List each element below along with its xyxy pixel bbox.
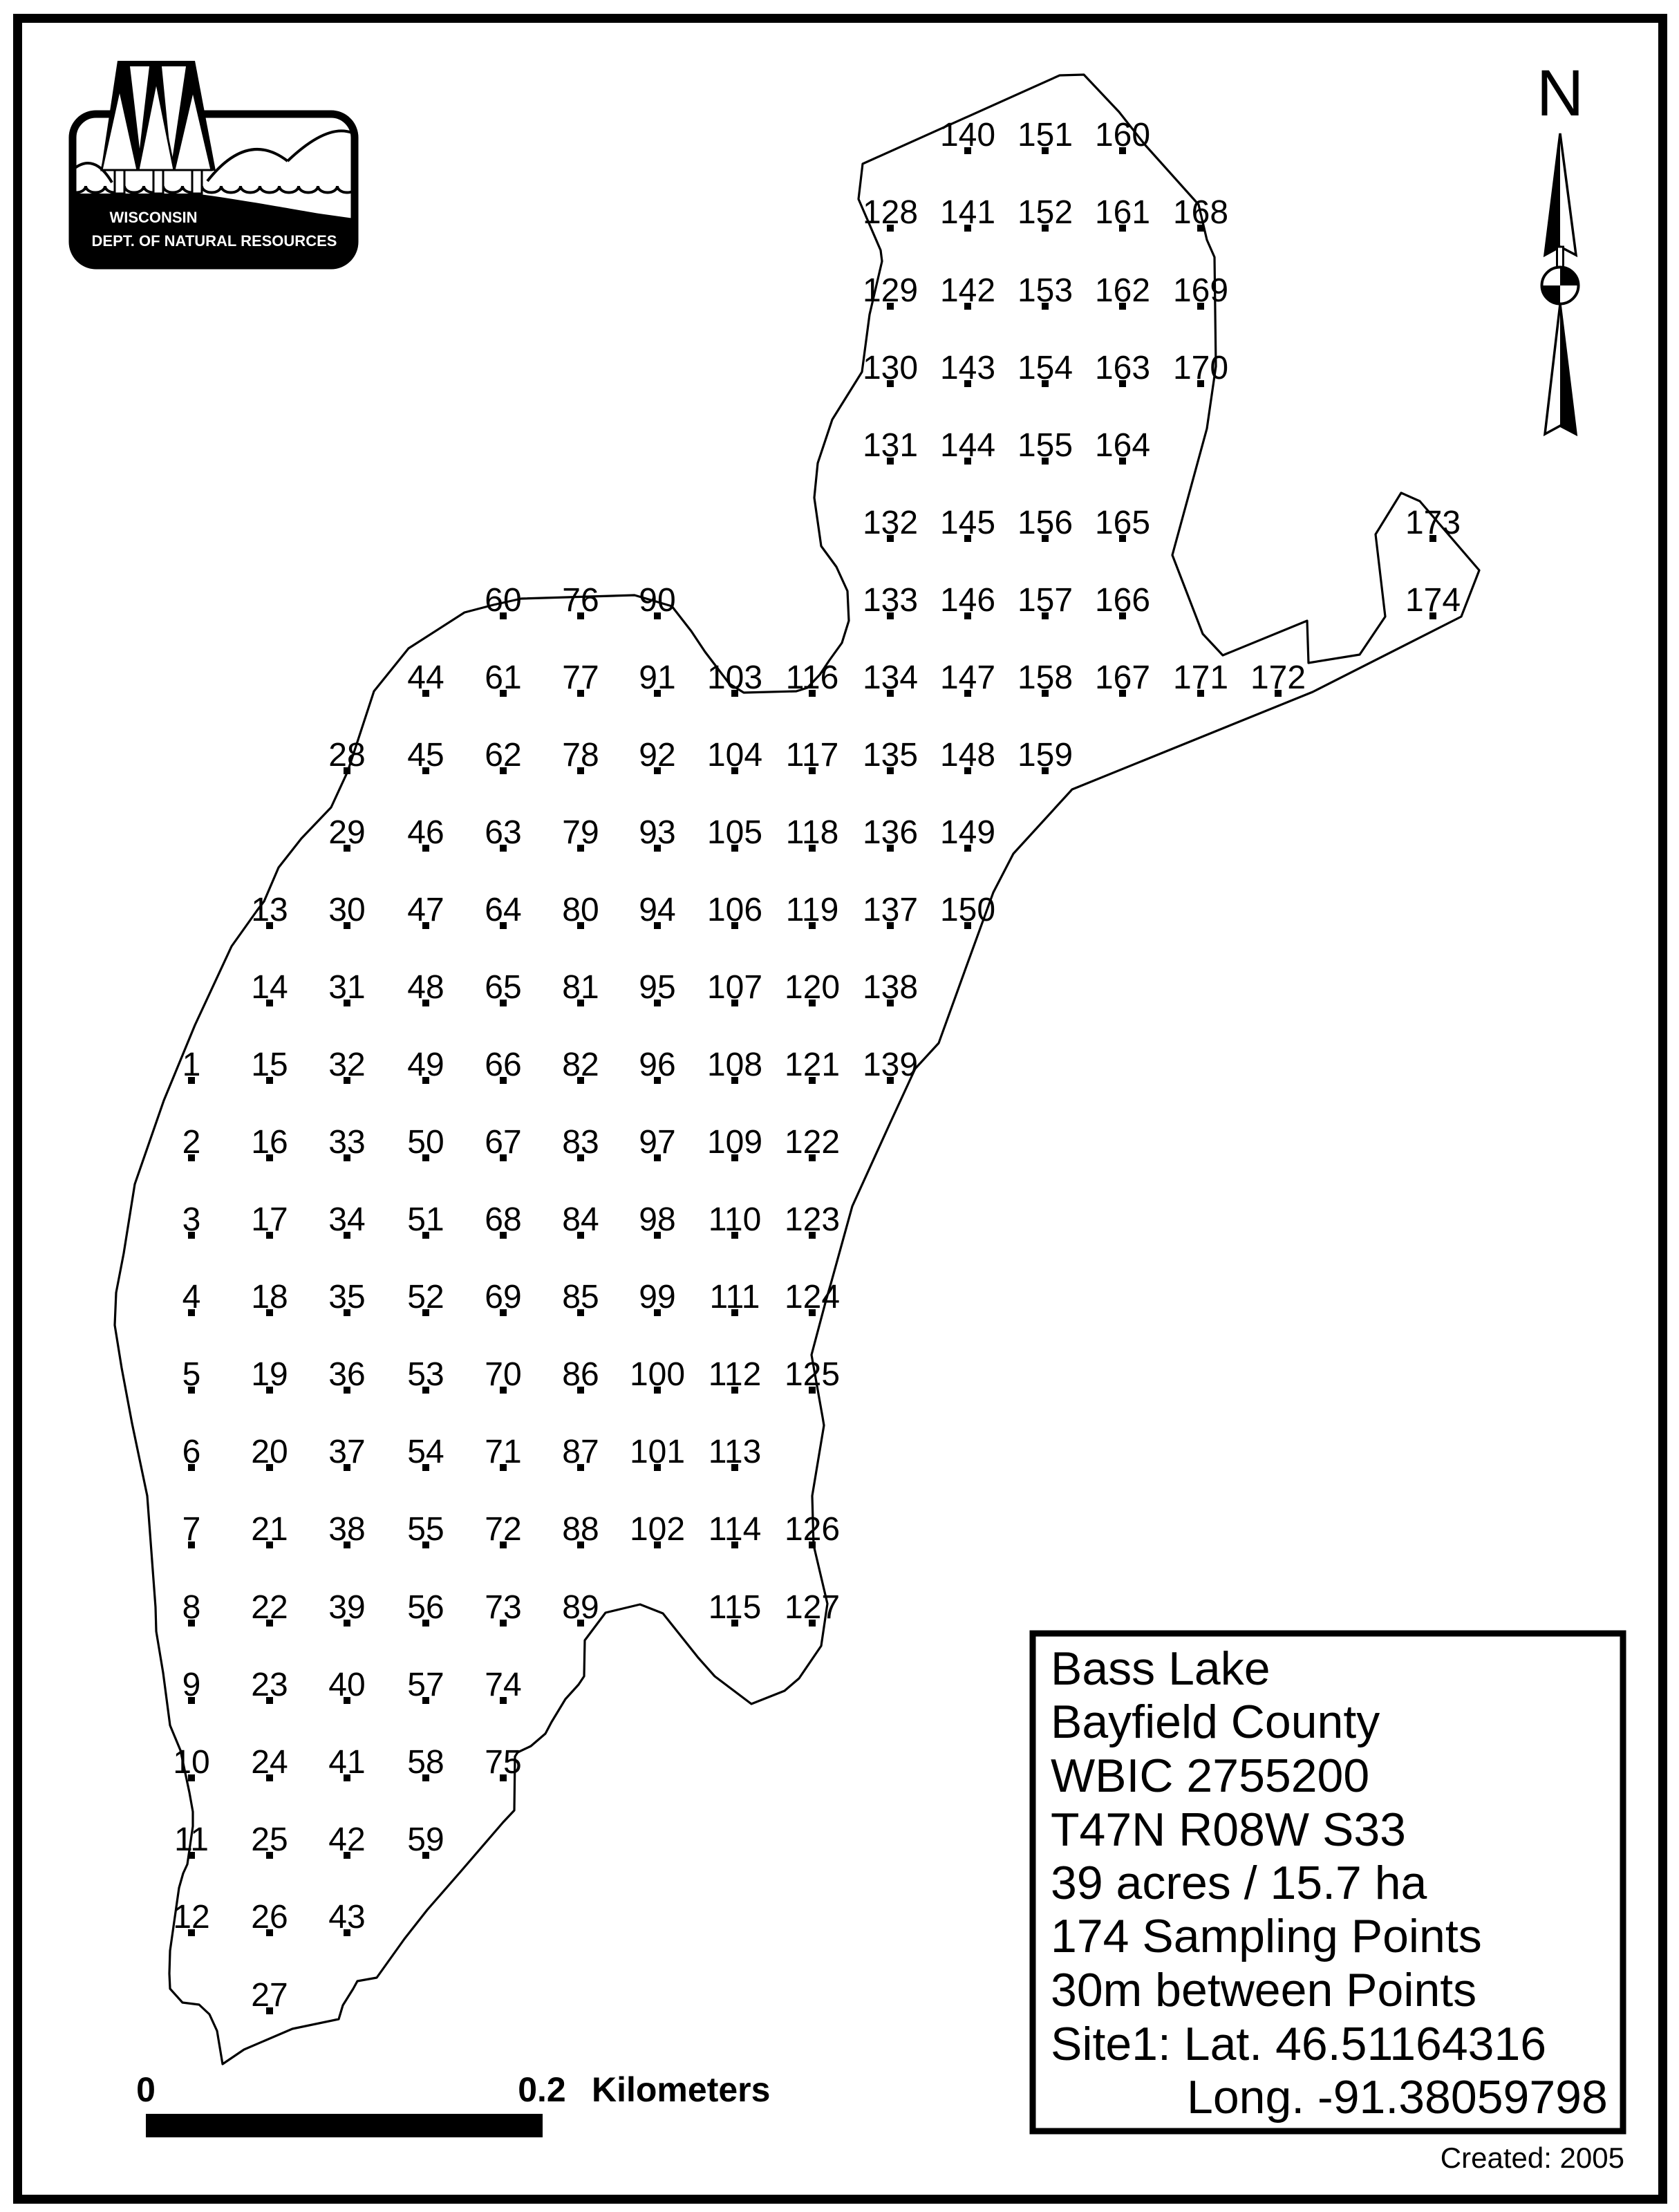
svg-text:26: 26: [251, 1899, 288, 1935]
svg-text:55: 55: [407, 1511, 444, 1548]
svg-text:WBIC 2755200: WBIC 2755200: [1051, 1750, 1369, 1802]
svg-text:30m between Points: 30m between Points: [1051, 1964, 1476, 2016]
svg-text:174: 174: [1405, 582, 1461, 619]
svg-text:Kilometers: Kilometers: [592, 2070, 770, 2109]
svg-text:82: 82: [562, 1047, 599, 1083]
svg-text:96: 96: [639, 1047, 675, 1083]
svg-text:18: 18: [251, 1279, 288, 1315]
svg-text:37: 37: [328, 1434, 365, 1470]
svg-text:166: 166: [1095, 582, 1150, 619]
svg-text:134: 134: [863, 659, 918, 696]
svg-text:61: 61: [485, 659, 521, 696]
svg-text:27: 27: [251, 1977, 288, 2014]
svg-text:16: 16: [251, 1124, 288, 1161]
svg-text:138: 138: [863, 969, 918, 1006]
svg-text:108: 108: [707, 1047, 762, 1083]
svg-text:133: 133: [863, 582, 918, 619]
svg-text:119: 119: [786, 892, 839, 928]
svg-text:79: 79: [562, 814, 599, 851]
svg-text:145: 145: [940, 505, 995, 541]
svg-text:113: 113: [709, 1434, 762, 1470]
svg-text:0: 0: [136, 2070, 156, 2109]
svg-text:5: 5: [182, 1356, 201, 1393]
svg-text:147: 147: [940, 659, 995, 696]
svg-text:28: 28: [328, 737, 365, 774]
svg-text:78: 78: [562, 737, 599, 774]
svg-text:42: 42: [328, 1821, 365, 1858]
svg-text:148: 148: [940, 737, 995, 774]
svg-text:19: 19: [251, 1356, 288, 1393]
svg-text:7: 7: [182, 1511, 201, 1548]
svg-text:111: 111: [710, 1279, 760, 1315]
svg-text:51: 51: [407, 1201, 444, 1238]
svg-text:70: 70: [485, 1356, 521, 1393]
svg-text:45: 45: [407, 737, 444, 774]
svg-text:115: 115: [709, 1589, 762, 1626]
svg-text:132: 132: [863, 505, 918, 541]
svg-text:43: 43: [328, 1899, 365, 1935]
svg-text:65: 65: [485, 969, 521, 1006]
svg-text:152: 152: [1017, 194, 1073, 231]
svg-text:163: 163: [1095, 350, 1150, 386]
svg-text:92: 92: [639, 737, 675, 774]
svg-text:104: 104: [707, 737, 762, 774]
svg-text:174 Sampling Points: 174 Sampling Points: [1051, 1910, 1482, 1962]
svg-text:Created: 2005: Created: 2005: [1441, 2141, 1624, 2174]
svg-text:54: 54: [407, 1434, 444, 1470]
svg-text:T47N R08W S33: T47N R08W S33: [1051, 1803, 1406, 1856]
svg-text:2: 2: [182, 1124, 201, 1161]
svg-text:59: 59: [407, 1821, 444, 1858]
svg-text:156: 156: [1017, 505, 1073, 541]
svg-text:21: 21: [251, 1511, 288, 1548]
svg-text:DEPT. OF NATURAL RESOURCES: DEPT. OF NATURAL RESOURCES: [92, 232, 337, 250]
svg-text:172: 172: [1250, 659, 1306, 696]
svg-text:31: 31: [328, 969, 365, 1006]
svg-text:25: 25: [251, 1821, 288, 1858]
svg-text:75: 75: [485, 1744, 521, 1781]
svg-text:127: 127: [785, 1589, 840, 1626]
svg-text:167: 167: [1095, 659, 1150, 696]
svg-text:58: 58: [407, 1744, 444, 1781]
svg-text:76: 76: [562, 582, 599, 619]
svg-text:114: 114: [709, 1511, 762, 1548]
svg-text:95: 95: [639, 969, 675, 1006]
svg-text:40: 40: [328, 1667, 365, 1703]
svg-text:165: 165: [1095, 505, 1150, 541]
svg-text:93: 93: [639, 814, 675, 851]
svg-text:117: 117: [786, 737, 839, 774]
svg-text:154: 154: [1017, 350, 1073, 386]
svg-text:52: 52: [407, 1279, 444, 1315]
svg-text:49: 49: [407, 1047, 444, 1083]
svg-text:110: 110: [709, 1201, 762, 1238]
svg-text:23: 23: [251, 1667, 288, 1703]
svg-text:86: 86: [562, 1356, 599, 1393]
svg-text:149: 149: [940, 814, 995, 851]
svg-text:22: 22: [251, 1589, 288, 1626]
svg-text:89: 89: [562, 1589, 599, 1626]
svg-text:33: 33: [328, 1124, 365, 1161]
svg-text:102: 102: [630, 1511, 685, 1548]
svg-text:157: 157: [1017, 582, 1073, 619]
svg-text:160: 160: [1095, 117, 1150, 153]
svg-text:88: 88: [562, 1511, 599, 1548]
svg-text:120: 120: [785, 969, 840, 1006]
svg-text:130: 130: [863, 350, 918, 386]
svg-text:94: 94: [639, 892, 675, 928]
svg-text:14: 14: [251, 969, 288, 1006]
svg-text:81: 81: [562, 969, 599, 1006]
svg-text:83: 83: [562, 1124, 599, 1161]
svg-text:Long. -91.38059798: Long. -91.38059798: [1187, 2071, 1608, 2124]
svg-text:34: 34: [328, 1201, 365, 1238]
svg-text:62: 62: [485, 737, 521, 774]
svg-text:41: 41: [328, 1744, 365, 1781]
svg-text:112: 112: [709, 1356, 762, 1393]
svg-text:80: 80: [562, 892, 599, 928]
svg-text:101: 101: [630, 1434, 685, 1470]
svg-text:143: 143: [940, 350, 995, 386]
svg-text:66: 66: [485, 1047, 521, 1083]
svg-text:64: 64: [485, 892, 521, 928]
svg-text:10: 10: [173, 1744, 209, 1781]
svg-text:39 acres / 15.7 ha: 39 acres / 15.7 ha: [1051, 1857, 1427, 1909]
svg-text:140: 140: [940, 117, 995, 153]
svg-text:Site1: Lat. 46.51164316: Site1: Lat. 46.51164316: [1051, 2018, 1546, 2070]
svg-text:29: 29: [328, 814, 365, 851]
svg-text:6: 6: [182, 1434, 201, 1470]
svg-text:161: 161: [1095, 194, 1150, 231]
svg-text:151: 151: [1017, 117, 1073, 153]
svg-text:131: 131: [863, 427, 918, 464]
svg-text:144: 144: [940, 427, 995, 464]
svg-text:171: 171: [1173, 659, 1228, 696]
svg-text:122: 122: [785, 1124, 840, 1161]
svg-text:84: 84: [562, 1201, 599, 1238]
svg-text:48: 48: [407, 969, 444, 1006]
svg-text:169: 169: [1173, 272, 1228, 309]
svg-text:85: 85: [562, 1279, 599, 1315]
svg-text:77: 77: [562, 659, 599, 696]
svg-text:24: 24: [251, 1744, 288, 1781]
svg-text:146: 146: [940, 582, 995, 619]
svg-text:N: N: [1537, 57, 1584, 130]
svg-text:100: 100: [630, 1356, 685, 1393]
svg-text:71: 71: [485, 1434, 521, 1470]
svg-text:87: 87: [562, 1434, 599, 1470]
svg-text:118: 118: [786, 814, 839, 851]
svg-text:69: 69: [485, 1279, 521, 1315]
svg-text:164: 164: [1095, 427, 1150, 464]
svg-text:53: 53: [407, 1356, 444, 1393]
svg-text:91: 91: [639, 659, 675, 696]
svg-text:4: 4: [182, 1279, 201, 1315]
svg-text:20: 20: [251, 1434, 288, 1470]
svg-text:57: 57: [407, 1667, 444, 1703]
svg-text:9: 9: [182, 1667, 201, 1703]
svg-text:107: 107: [707, 969, 762, 1006]
svg-text:136: 136: [863, 814, 918, 851]
svg-text:121: 121: [785, 1047, 840, 1083]
svg-text:38: 38: [328, 1511, 365, 1548]
svg-text:153: 153: [1017, 272, 1073, 309]
svg-text:74: 74: [485, 1667, 521, 1703]
svg-text:12: 12: [173, 1899, 209, 1935]
svg-text:135: 135: [863, 737, 918, 774]
svg-text:Bass Lake: Bass Lake: [1051, 1642, 1270, 1695]
svg-text:32: 32: [328, 1047, 365, 1083]
svg-text:17: 17: [251, 1201, 288, 1238]
svg-text:1: 1: [182, 1047, 201, 1083]
svg-text:109: 109: [707, 1124, 762, 1161]
svg-text:129: 129: [863, 272, 918, 309]
svg-text:0.2: 0.2: [518, 2070, 566, 2109]
svg-text:50: 50: [407, 1124, 444, 1161]
svg-text:155: 155: [1017, 427, 1073, 464]
svg-text:159: 159: [1017, 737, 1073, 774]
svg-text:47: 47: [407, 892, 444, 928]
svg-text:162: 162: [1095, 272, 1150, 309]
svg-text:WISCONSIN: WISCONSIN: [109, 209, 197, 226]
svg-text:158: 158: [1017, 659, 1073, 696]
svg-text:67: 67: [485, 1124, 521, 1161]
svg-text:98: 98: [639, 1201, 675, 1238]
svg-text:97: 97: [639, 1124, 675, 1161]
svg-text:170: 170: [1173, 350, 1228, 386]
svg-text:123: 123: [785, 1201, 840, 1238]
svg-text:30: 30: [328, 892, 365, 928]
svg-text:90: 90: [639, 582, 675, 619]
svg-text:72: 72: [485, 1511, 521, 1548]
svg-text:46: 46: [407, 814, 444, 851]
svg-text:139: 139: [863, 1047, 918, 1083]
svg-text:141: 141: [940, 194, 995, 231]
svg-text:142: 142: [940, 272, 995, 309]
svg-text:99: 99: [639, 1279, 675, 1315]
svg-text:36: 36: [328, 1356, 365, 1393]
svg-text:8: 8: [182, 1589, 201, 1626]
svg-text:35: 35: [328, 1279, 365, 1315]
svg-text:137: 137: [863, 892, 918, 928]
svg-text:Bayfield County: Bayfield County: [1051, 1696, 1380, 1748]
svg-text:105: 105: [707, 814, 762, 851]
svg-text:44: 44: [407, 659, 444, 696]
svg-text:39: 39: [328, 1589, 365, 1626]
svg-text:68: 68: [485, 1201, 521, 1238]
svg-text:73: 73: [485, 1589, 521, 1626]
svg-text:63: 63: [485, 814, 521, 851]
svg-text:3: 3: [182, 1201, 201, 1238]
svg-text:106: 106: [707, 892, 762, 928]
svg-text:15: 15: [251, 1047, 288, 1083]
svg-text:56: 56: [407, 1589, 444, 1626]
svg-text:173: 173: [1405, 505, 1461, 541]
